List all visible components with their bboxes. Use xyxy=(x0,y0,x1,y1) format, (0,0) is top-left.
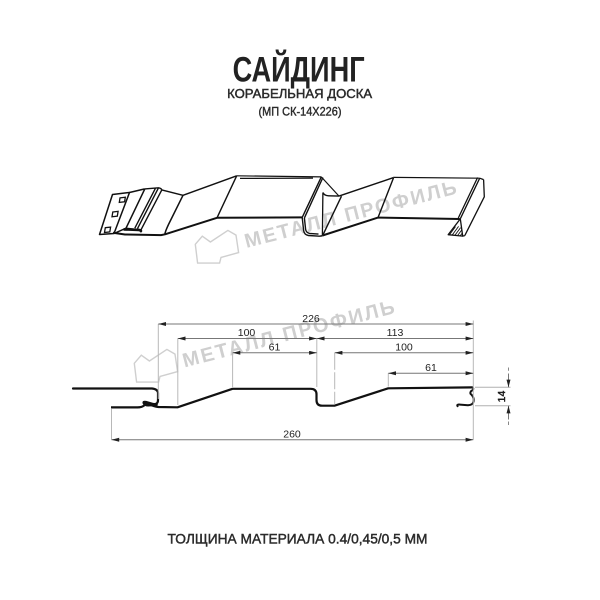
svg-text:ТОЛЩИНА МАТЕРИАЛА 0.4/0,45/0,5: ТОЛЩИНА МАТЕРИАЛА 0.4/0,45/0,5 ММ xyxy=(168,532,428,547)
svg-text:МЕТАЛЛ ПРОФИЛЬ: МЕТАЛЛ ПРОФИЛЬ xyxy=(242,176,461,252)
svg-text:100: 100 xyxy=(238,327,256,339)
svg-text:(МП СК-14Х226): (МП СК-14Х226) xyxy=(259,105,342,119)
svg-text:САЙДИНГ: САЙДИНГ xyxy=(233,49,365,89)
svg-text:113: 113 xyxy=(387,327,404,339)
svg-text:61: 61 xyxy=(269,342,281,354)
svg-text:260: 260 xyxy=(283,428,301,440)
svg-text:МЕТАЛЛ ПРОФИЛЬ: МЕТАЛЛ ПРОФИЛЬ xyxy=(180,296,399,372)
svg-text:14: 14 xyxy=(496,391,508,403)
svg-text:КОРАБЕЛЬНАЯ ДОСКА: КОРАБЕЛЬНАЯ ДОСКА xyxy=(227,86,372,101)
svg-text:226: 226 xyxy=(302,313,320,325)
svg-text:61: 61 xyxy=(425,362,437,374)
svg-text:100: 100 xyxy=(395,342,413,354)
